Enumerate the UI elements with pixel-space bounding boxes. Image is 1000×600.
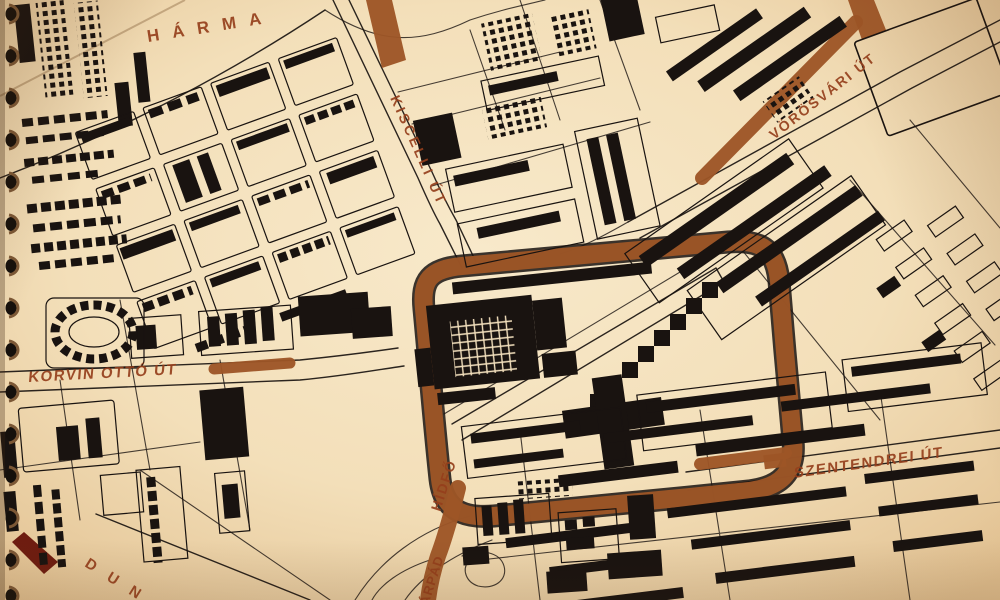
map-page: HÁRMA KISCELLI ÚT VÖRÖSVÁRI ÚT KORVIN OT… bbox=[0, 0, 1000, 600]
route-segment-korvin bbox=[214, 363, 290, 369]
map-canvas: HÁRMA KISCELLI ÚT VÖRÖSVÁRI ÚT KORVIN OT… bbox=[0, 0, 1000, 600]
spiral-binding bbox=[0, 0, 18, 600]
